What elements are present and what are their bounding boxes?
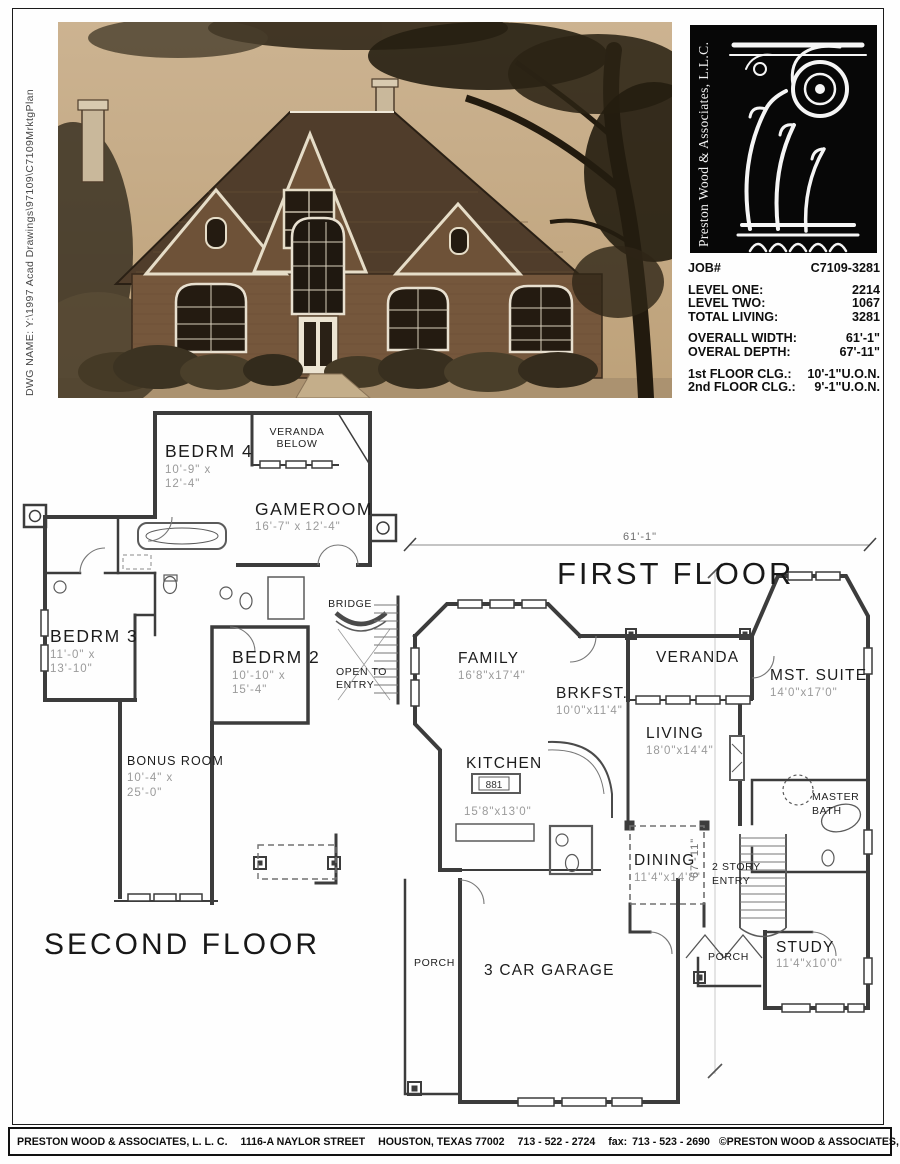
footer-company: PRESTON WOOD & ASSOCIATES, L. L. C. — [17, 1136, 228, 1148]
first-floor-title: FIRST FLOOR — [557, 556, 794, 592]
label-master-bath-1: MASTER — [812, 791, 859, 803]
second-clg-label: 2nd FLOOR CLG.: — [688, 381, 796, 395]
total-living-label: TOTAL LIVING: — [688, 311, 778, 325]
second-floor-plan: BEDRM 4 10'-9" x 12'-4" VERANDA BELOW GA… — [20, 405, 400, 925]
room-dim-bedrm3-2: 13'-10" — [50, 663, 93, 675]
label-bridge: BRIDGE — [328, 598, 372, 610]
room-label-bedrm4: BEDRM 4 — [165, 441, 253, 461]
company-logo — [690, 25, 877, 253]
level-two-label: LEVEL TWO: — [688, 297, 765, 311]
room-dim-bonus-2: 25'-0" — [127, 787, 162, 799]
room-dim-living: 18'0"x14'4" — [646, 745, 714, 757]
first-floor-details — [456, 636, 864, 958]
title-block: JOB# C7109-3281 LEVEL ONE:2214 LEVEL TWO… — [688, 262, 880, 395]
overall-width-dimension: 61'-1" — [623, 531, 657, 543]
second-clg-value: 9'-1"U.O.N. — [814, 381, 880, 395]
footer-fax-label: fax: — [608, 1136, 627, 1148]
dimension-lines: 61'-1" 67'-11" — [404, 531, 876, 1078]
room-dim-mst-suite: 14'0"x17'0" — [770, 687, 838, 699]
room-dim-bonus-1: 10'-4" x — [127, 772, 173, 784]
first-floor-plan: 61'-1" 67'-11" — [400, 528, 880, 1125]
label-two-story-entry-1: 2 STORY — [712, 861, 761, 873]
first-clg-label: 1st FLOOR CLG.: — [688, 368, 792, 382]
footer-fax-number: 713 - 523 - 2690 — [632, 1136, 710, 1148]
room-label-mst-suite: MST. SUITE — [770, 667, 867, 684]
room-label-veranda: VERANDA — [656, 649, 739, 666]
room-label-bedrm3: BEDRM 3 — [50, 626, 138, 646]
room-dim-bedrm4-1: 10'-9" x — [165, 464, 211, 476]
room-label-brkfst: BRKFST. — [556, 685, 628, 702]
footer-city: HOUSTON, TEXAS 77002 — [378, 1136, 504, 1148]
room-dim-dining: 11'4"x14'8" — [634, 872, 701, 884]
room-dim-kitchen: 15'8"x13'0" — [464, 806, 532, 818]
room-dim-bedrm2-2: 15'-4" — [232, 684, 267, 696]
room-dim-bedrm3-1: 11'-0" x — [50, 649, 95, 661]
label-two-story-entry-2: ENTRY — [712, 875, 750, 887]
room-label-living: LIVING — [646, 725, 704, 742]
overall-width-label: OVERALL WIDTH: — [688, 332, 797, 346]
level-one-value: 2214 — [852, 284, 880, 298]
room-label-study: STUDY — [776, 939, 835, 956]
label-porch-left: PORCH — [414, 957, 455, 969]
room-label-garage: 3 CAR GARAGE — [484, 962, 615, 979]
label-porch-right: PORCH — [708, 951, 749, 963]
company-name-vertical: Preston Wood & Associates, L.L.C. — [696, 42, 712, 247]
column-capital-illustration — [690, 25, 877, 253]
overall-width-value: 61'-1" — [846, 332, 880, 346]
level-one-label: LEVEL ONE: — [688, 284, 763, 298]
footer-phone: 713 - 522 - 2724 — [518, 1136, 596, 1148]
room-dim-brkfst: 10'0"x11'4" — [556, 705, 623, 717]
footer-bar: PRESTON WOOD & ASSOCIATES, L. L. C. 1116… — [8, 1127, 892, 1156]
room-label-bedrm2: BEDRM 2 — [232, 647, 320, 667]
job-row: JOB# C7109-3281 — [688, 262, 880, 276]
total-living-value: 3281 — [852, 311, 880, 325]
house-rendering — [58, 22, 672, 398]
room-label-kitchen: KITCHEN — [466, 755, 542, 772]
label-open-to-entry-1: OPEN TO — [336, 666, 387, 678]
second-floor-walls — [45, 413, 398, 903]
room-dim-gameroom: 16'-7" x 12'-4" — [255, 521, 341, 533]
label-veranda-below-2: BELOW — [277, 438, 318, 450]
room-dim-study: 11'4"x10'0" — [776, 958, 843, 970]
chimney-left — [82, 108, 104, 182]
room-label-bonus: BONUS ROOM — [127, 754, 224, 768]
dwg-filename: DWG NAME: Y:\1997 Acad Drawings\97109\C7… — [24, 89, 36, 396]
room-label-gameroom: GAMEROOM — [255, 499, 373, 519]
room-dim-bedrm4-2: 12'-4" — [165, 478, 200, 490]
label-master-bath-2: BATH — [812, 805, 842, 817]
overall-depth-value: 67'-11" — [840, 346, 880, 360]
cooktop-symbol: 881 — [486, 780, 503, 791]
label-veranda-below-1: VERANDA — [270, 426, 325, 438]
plan-sheet: { "sheet": { "dwg_name": "DWG NAME: Y:\\… — [0, 0, 900, 1164]
room-dim-bedrm2-1: 10'-10" x — [232, 670, 286, 682]
level-two-value: 1067 — [852, 297, 880, 311]
room-label-family: FAMILY — [458, 650, 519, 667]
job-label: JOB# — [688, 262, 721, 276]
footer-address: 1116-A NAYLOR STREET — [241, 1136, 366, 1148]
room-dim-family: 16'8"x17'4" — [458, 670, 526, 682]
job-value: C7109-3281 — [811, 262, 880, 276]
footer-copyright: ©PRESTON WOOD & ASSOCIATES, L. L. C. COP… — [719, 1136, 900, 1148]
first-clg-value: 10'-1"U.O.N. — [807, 368, 880, 382]
label-open-to-entry-2: ENTRY — [336, 679, 374, 691]
room-label-dining: DINING — [634, 852, 695, 869]
second-floor-title: SECOND FLOOR — [44, 928, 320, 962]
overall-depth-label: OVERAL DEPTH: — [688, 346, 791, 360]
